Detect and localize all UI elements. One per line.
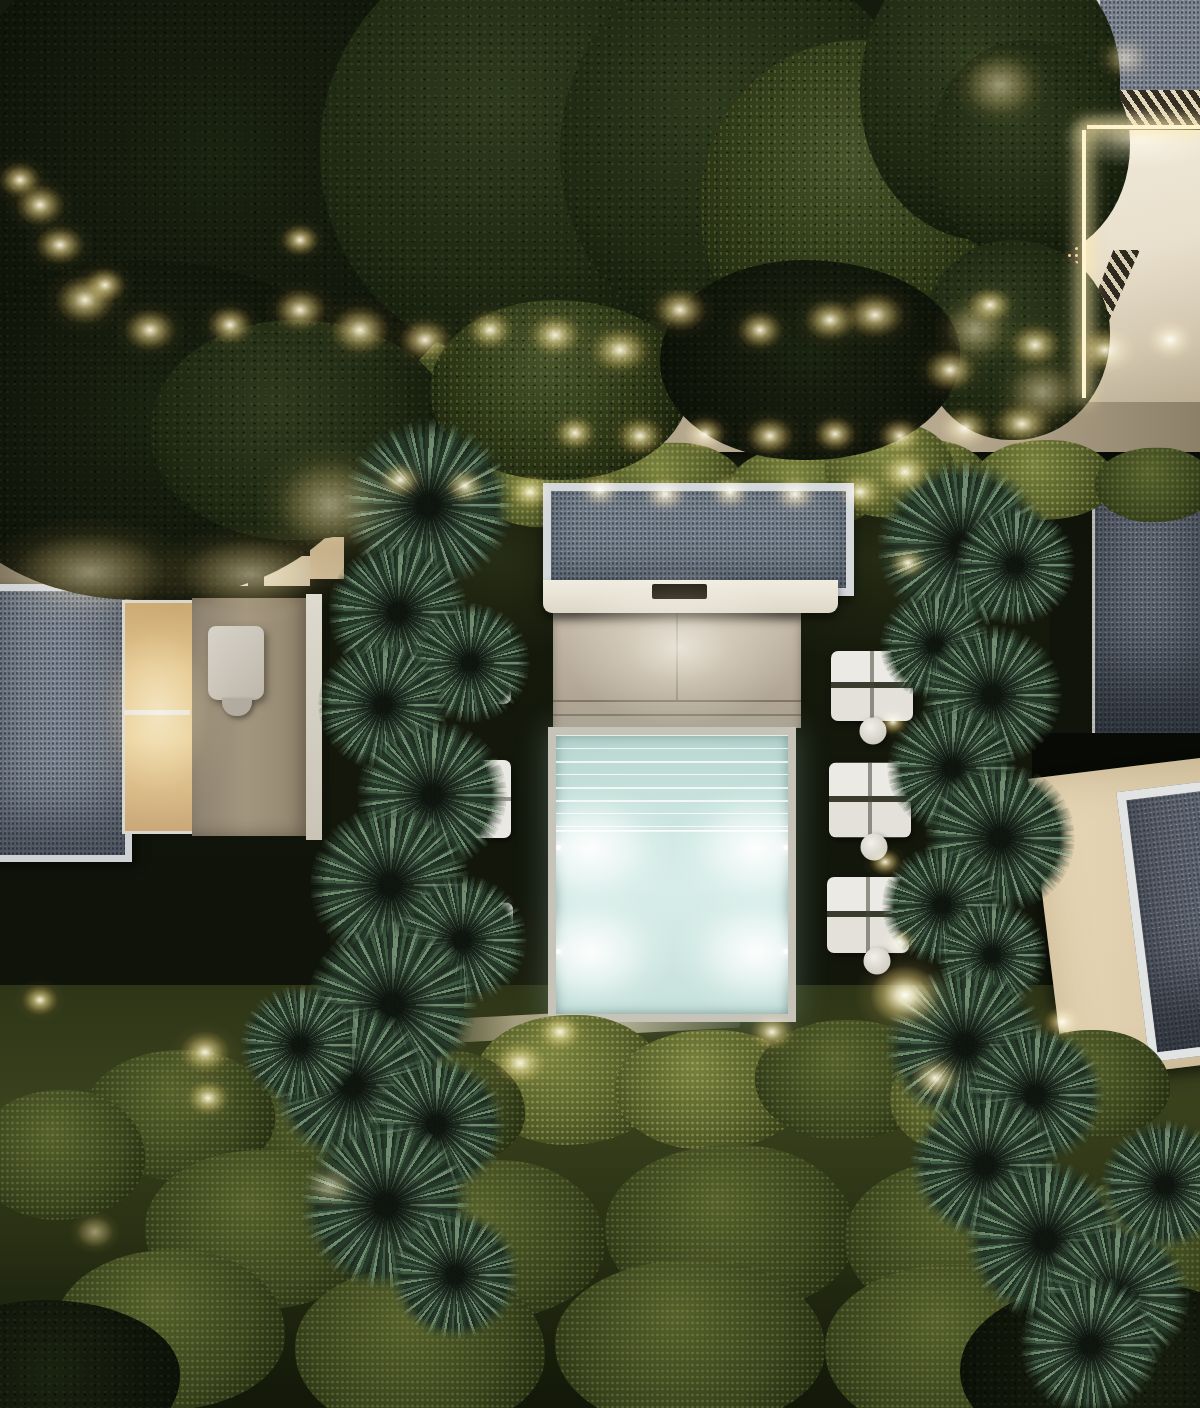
garden-light-glow — [862, 843, 908, 881]
garden-light-glow — [933, 293, 1018, 368]
underwater-light — [556, 949, 561, 954]
garden-light-glow — [25, 218, 95, 273]
garden-light-glow — [702, 468, 758, 516]
garden-light-glow — [273, 218, 328, 263]
garden-light-glow — [198, 298, 263, 353]
shrub — [1095, 448, 1200, 523]
underwater-light-glow — [556, 887, 675, 1014]
garden-light-glow — [741, 1007, 803, 1057]
led-strip-vertical — [1082, 130, 1086, 398]
garden-light-glow — [882, 541, 934, 585]
garden-light-glow — [643, 280, 718, 340]
garden-light-glow — [300, 1161, 360, 1211]
garden-light-glow — [564, 568, 794, 728]
shrub — [555, 1260, 825, 1408]
plunge-pool — [548, 727, 796, 1022]
garden-light-glow — [83, 597, 233, 827]
garden-light-glow — [728, 303, 793, 358]
garden-light-glow — [388, 310, 463, 370]
garden-light-glow — [14, 978, 66, 1022]
right-villa-gravel-roof — [1092, 483, 1200, 752]
garden-light-glow — [75, 260, 135, 310]
underwater-light-glow — [672, 887, 788, 1014]
garden-light-glow — [805, 409, 865, 459]
garden-light-glow — [675, 409, 735, 459]
underwater-light — [783, 949, 788, 954]
garden-light-glow — [113, 300, 188, 360]
garden-light-glow — [879, 924, 921, 960]
garden-light-glow — [1036, 1000, 1088, 1044]
garden-light-glow — [833, 283, 918, 348]
garden-light-glow — [545, 408, 605, 458]
garden-light-glow — [634, 469, 696, 519]
garden-light-glow — [437, 462, 493, 510]
garden-light-glow — [499, 467, 561, 517]
palm-tree — [1020, 1275, 1160, 1408]
garden-light-glow — [736, 409, 804, 464]
right-lower-villa-roof — [1116, 760, 1200, 1063]
garden-light-glow — [458, 303, 523, 358]
garden-light-glow — [869, 442, 941, 502]
garden-light-glow — [900, 1049, 970, 1107]
garden-light-glow — [855, 953, 955, 1038]
garden-light-glow — [606, 409, 674, 464]
aerial-villa-garden-scene — [0, 0, 1200, 1408]
garden-light-glow — [995, 352, 1090, 432]
garden-light-glow — [950, 43, 1050, 128]
garden-light-glow — [255, 440, 405, 570]
pool-water — [556, 735, 788, 1014]
garden-light-glow — [178, 1073, 238, 1123]
garden-light-glow — [872, 704, 914, 740]
underwater-light — [783, 845, 788, 850]
palm-tree — [390, 1210, 520, 1340]
garden-light-glow — [764, 469, 826, 519]
garden-light-glow — [572, 466, 628, 514]
palm-tree — [240, 985, 360, 1105]
led-strip-horizontal — [1087, 125, 1200, 129]
garden-light-glow — [1095, 33, 1155, 83]
garden-light-glow — [483, 1033, 558, 1093]
garden-light-glow — [69, 1210, 121, 1254]
underwater-light — [556, 845, 561, 850]
garden-light-glow — [1138, 313, 1200, 368]
